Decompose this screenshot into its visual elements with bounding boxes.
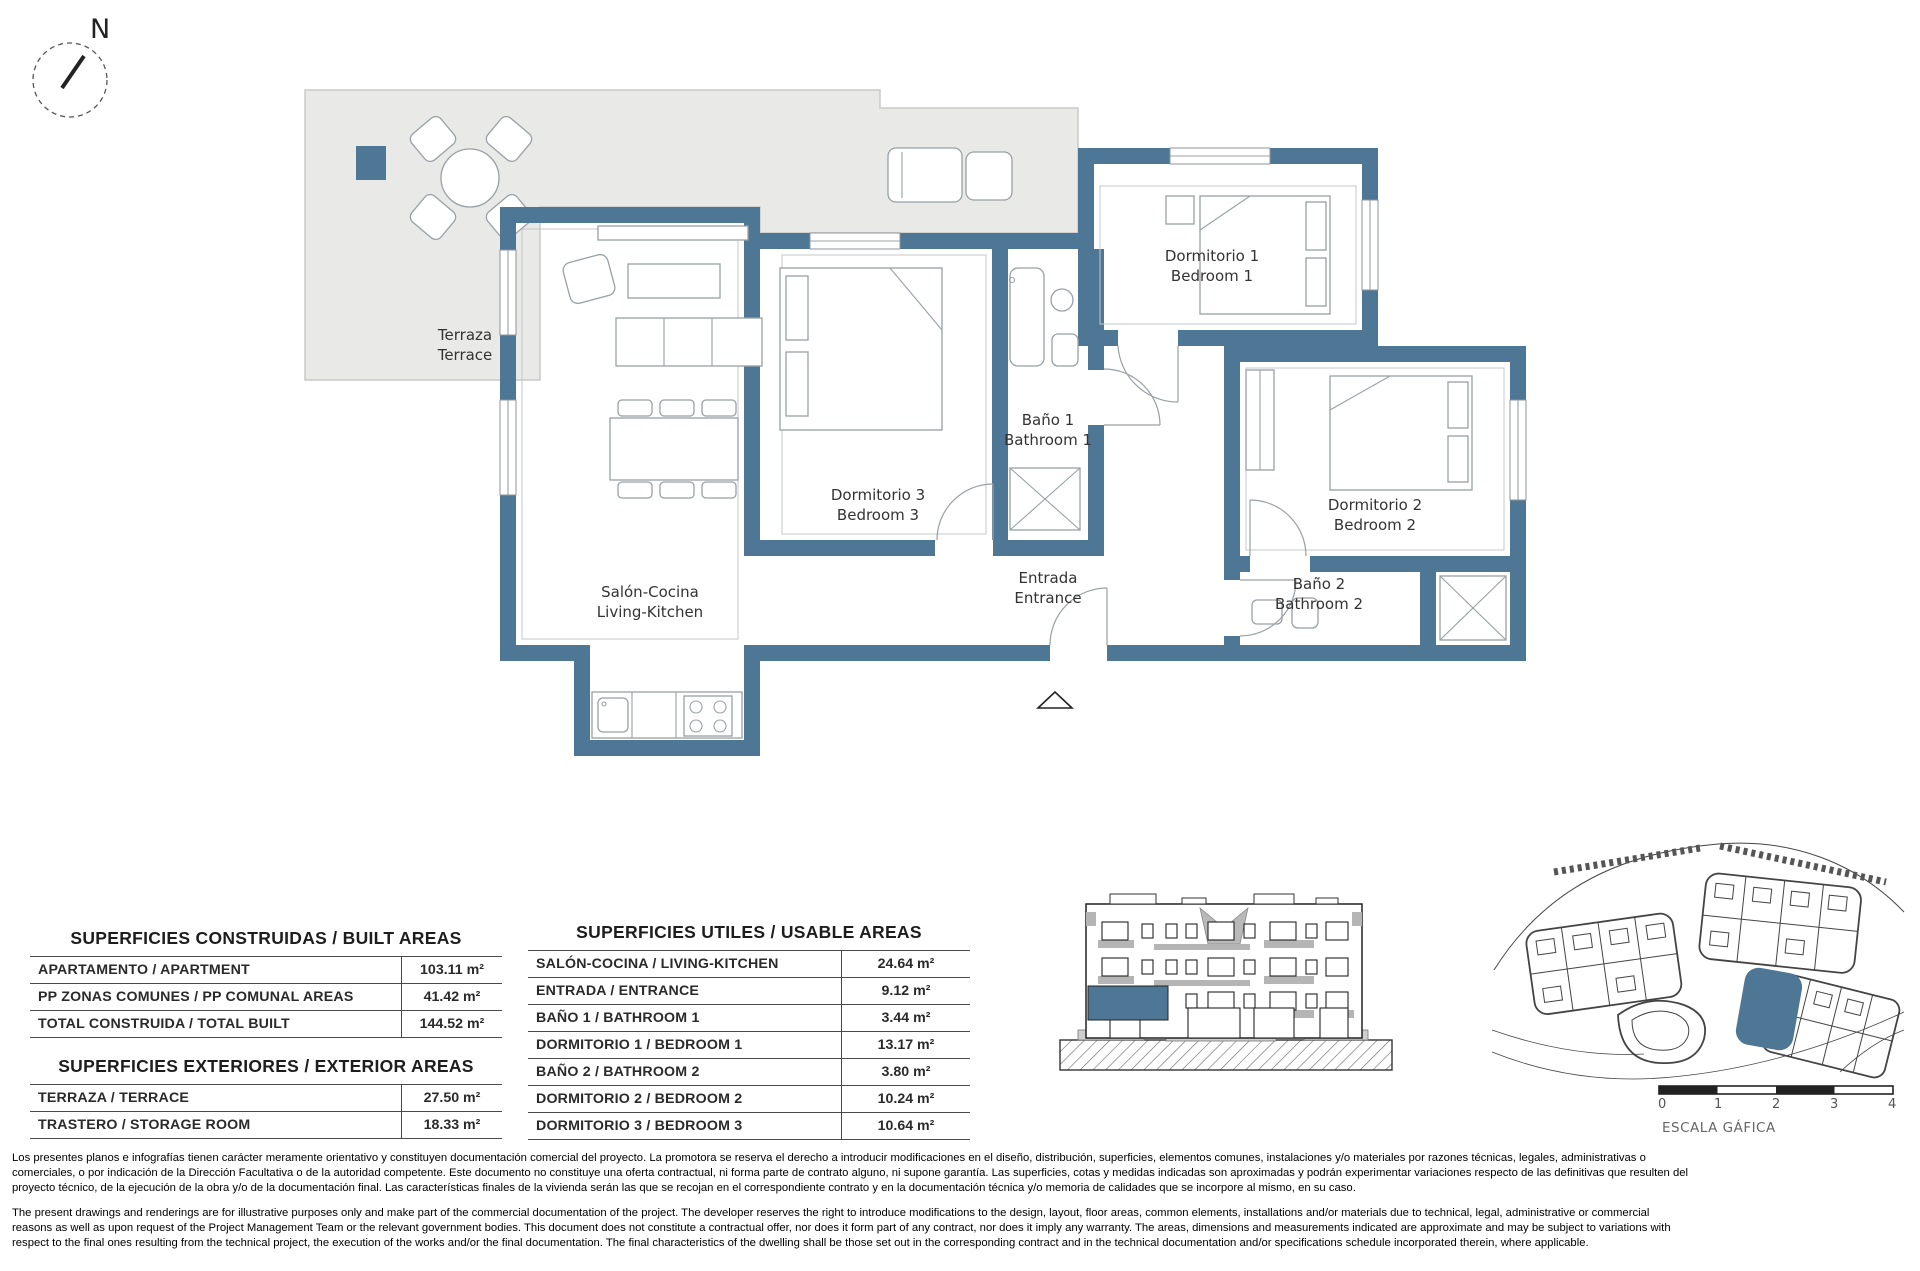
compass-needle-icon	[62, 56, 84, 88]
compass-circle	[33, 43, 107, 117]
scale-tick: 1	[1714, 1097, 1722, 1112]
pond-outline	[1618, 1001, 1705, 1063]
scale-bar-label: ESCALA GÁFICA	[1662, 1120, 1776, 1136]
built-areas-table: SUPERFICIES CONSTRUIDAS / BUILT AREAS AP…	[30, 928, 502, 1038]
exterior-areas-table: SUPERFICIES EXTERIORES / EXTERIOR AREAS …	[30, 1056, 502, 1139]
table-row: DORMITORIO 3 / BEDROOM 3 10.64 m²	[528, 1112, 970, 1140]
table-row: SALÓN-COCINA / LIVING-KITCHEN 24.64 m²	[528, 950, 970, 977]
room-label-bano1-es: Baño 1	[1022, 411, 1074, 429]
table-row: BAÑO 1 / BATHROOM 1 3.44 m²	[528, 1004, 970, 1031]
room-label-salon-en: Living-Kitchen	[597, 603, 703, 621]
room-label-terraza-en: Terrace	[437, 346, 493, 364]
north-compass: N	[24, 10, 134, 120]
built-areas-title: SUPERFICIES CONSTRUIDAS / BUILT AREAS	[30, 928, 502, 956]
legal-en-line2: reasons as well as upon request of the P…	[12, 1221, 1912, 1236]
legal-es-line1: Los presentes planos e infografías tiene…	[12, 1151, 1912, 1166]
table-row: TRASTERO / STORAGE ROOM 18.33 m²	[30, 1111, 502, 1139]
table-row: BAÑO 2 / BATHROOM 2 3.80 m²	[528, 1058, 970, 1085]
legal-disclaimer-english: The present drawings and renderings are …	[12, 1206, 1912, 1252]
pond-inner	[1632, 1011, 1689, 1050]
table-row: PP ZONAS COMUNES / PP COMUNAL AREAS 41.4…	[30, 983, 502, 1010]
site-plan	[1488, 820, 1912, 1110]
legal-disclaimer-spanish: Los presentes planos e infografías tiene…	[12, 1151, 1912, 1197]
bedroom2-furniture	[1246, 370, 1472, 490]
scale-tick: 4	[1888, 1097, 1896, 1112]
highlighted-unit	[1088, 986, 1168, 1020]
table-row: DORMITORIO 2 / BEDROOM 2 10.24 m²	[528, 1085, 970, 1112]
room-label-dorm3-en: Bedroom 3	[837, 506, 919, 524]
legal-es-line2: comerciales, o por indicación de la Dire…	[12, 1166, 1912, 1181]
floor-plan: Terraza Terrace Salón-Cocina Living-Kitc…	[295, 80, 1535, 780]
room-label-entrada-en: Entrance	[1014, 589, 1081, 607]
highlighted-building	[1734, 966, 1805, 1053]
usable-areas-title: SUPERFICIES UTILES / USABLE AREAS	[528, 922, 970, 950]
table-row: DORMITORIO 1 / BEDROOM 1 13.17 m²	[528, 1031, 970, 1058]
scale-bar: 0 1 2 3 4 ESCALA GÁFICA	[1658, 1084, 1908, 1140]
bathroom1-fixtures	[1010, 268, 1081, 530]
usable-areas-table: SUPERFICIES UTILES / USABLE AREAS SALÓN-…	[528, 922, 970, 1140]
room-label-bano2-en: Bathroom 2	[1275, 595, 1363, 613]
room-label-dorm2-en: Bedroom 2	[1334, 516, 1416, 534]
scale-tick: 3	[1830, 1097, 1838, 1112]
kitchen-fixtures	[592, 692, 742, 738]
table-row: ENTRADA / ENTRANCE 9.12 m²	[528, 977, 970, 1004]
legal-en-line1: The present drawings and renderings are …	[12, 1206, 1912, 1221]
table-row: APARTAMENTO / APARTMENT 103.11 m²	[30, 956, 502, 983]
parking-strip	[1554, 848, 1700, 872]
scale-tick: 2	[1772, 1097, 1780, 1112]
bedroom3-furniture	[780, 268, 942, 430]
living-room-furniture	[561, 226, 762, 498]
room-label-terraza-es: Terraza	[437, 326, 492, 344]
building-cluster-north	[1698, 872, 1862, 974]
terrace-lounger	[888, 148, 1012, 202]
building-elevation	[1058, 888, 1398, 1078]
terrace-pillar	[356, 146, 386, 180]
entrance-marker-icon	[1038, 692, 1072, 708]
room-label-dorm1-en: Bedroom 1	[1171, 267, 1253, 285]
room-label-bano1-en: Bathroom 1	[1004, 431, 1092, 449]
room-label-salon-es: Salón-Cocina	[601, 583, 699, 601]
compass-north-label: N	[90, 14, 110, 45]
room-label-dorm2-es: Dormitorio 2	[1328, 496, 1422, 514]
scale-tick: 0	[1658, 1097, 1666, 1112]
legal-en-line3: respect to the final ones resulting from…	[12, 1236, 1912, 1251]
table-row: TERRAZA / TERRACE 27.50 m²	[30, 1084, 502, 1111]
room-label-dorm3-es: Dormitorio 3	[831, 486, 925, 504]
room-label-bano2-es: Baño 2	[1293, 575, 1345, 593]
table-row: TOTAL CONSTRUIDA / TOTAL BUILT 144.52 m²	[30, 1010, 502, 1038]
scale-bar-graphic	[1658, 1085, 1898, 1097]
exterior-areas-title: SUPERFICIES EXTERIORES / EXTERIOR AREAS	[30, 1056, 502, 1084]
room-label-entrada-es: Entrada	[1019, 569, 1078, 587]
legal-es-line3: proyecto técnico, de la ejecución de la …	[12, 1181, 1912, 1196]
room-label-dorm1-es: Dormitorio 1	[1165, 247, 1259, 265]
